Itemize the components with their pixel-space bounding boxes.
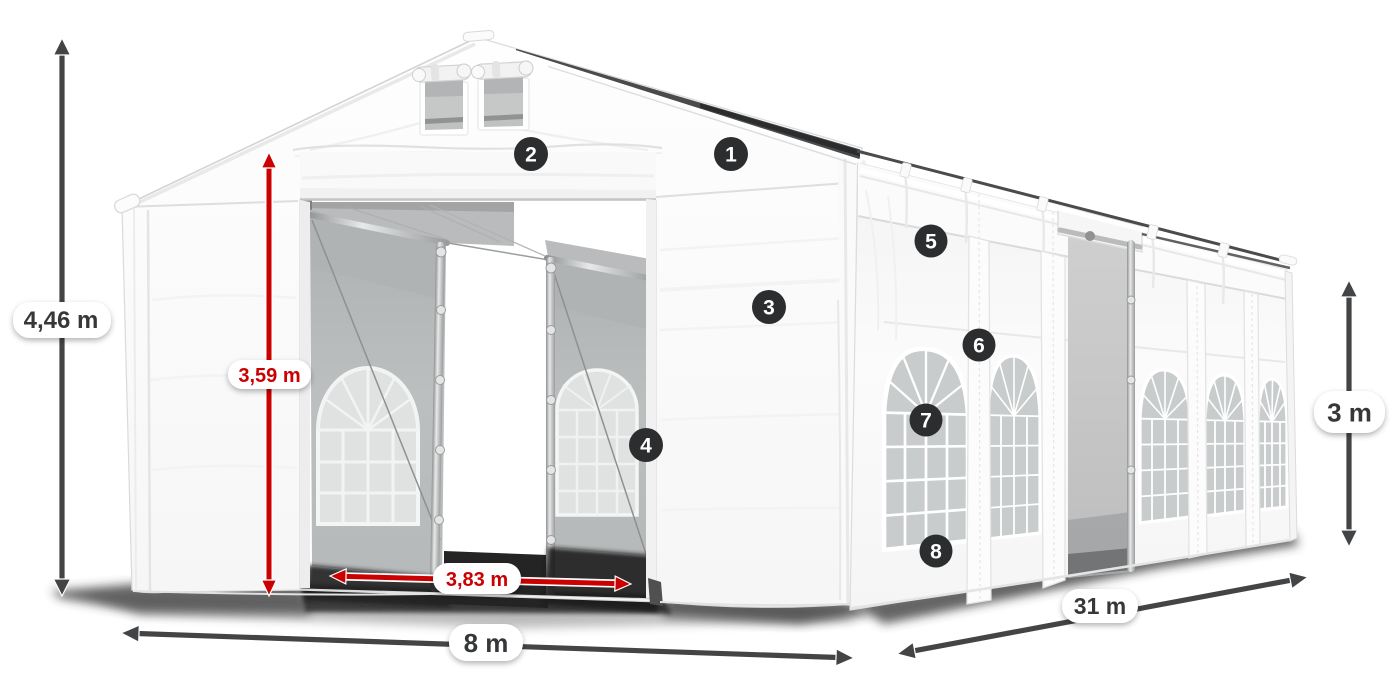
- svg-text:6: 6: [973, 335, 985, 358]
- svg-text:4: 4: [640, 435, 652, 458]
- svg-text:5: 5: [925, 231, 937, 254]
- svg-text:1: 1: [725, 144, 737, 167]
- svg-text:3,59 m: 3,59 m: [238, 365, 300, 387]
- svg-text:3: 3: [763, 297, 775, 320]
- svg-text:8: 8: [930, 541, 942, 564]
- svg-text:8 m: 8 m: [464, 628, 509, 658]
- svg-text:2: 2: [525, 144, 537, 167]
- svg-text:7: 7: [920, 410, 932, 433]
- svg-text:4,46 m: 4,46 m: [24, 307, 99, 334]
- svg-text:31 m: 31 m: [1074, 593, 1126, 619]
- svg-text:3 m: 3 m: [1327, 398, 1372, 428]
- svg-text:3,83 m: 3,83 m: [446, 569, 508, 591]
